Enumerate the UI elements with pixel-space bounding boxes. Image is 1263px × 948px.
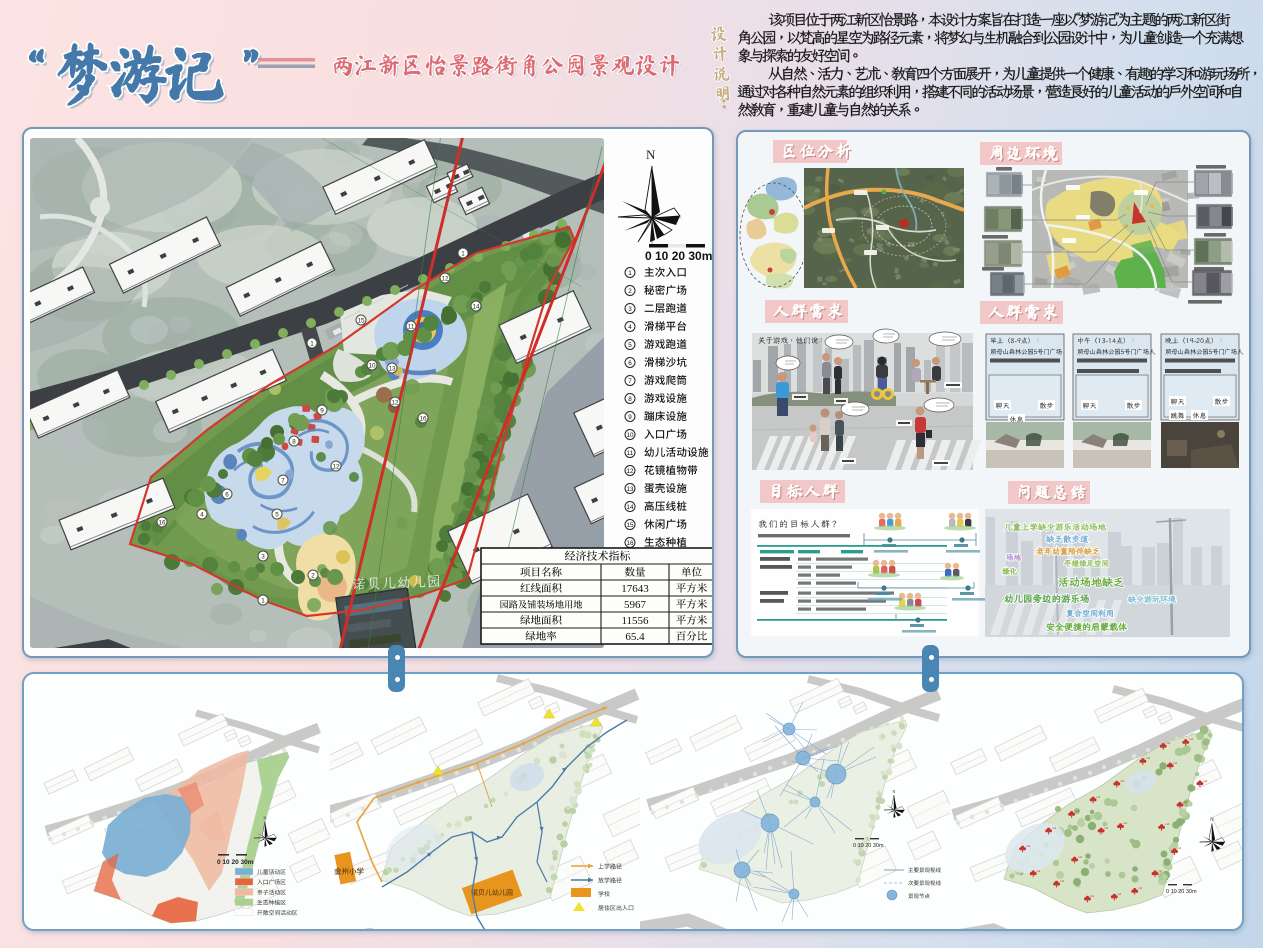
svg-text:12: 12 [441,275,449,282]
svg-text:12: 12 [626,468,634,475]
svg-text:5967: 5967 [624,599,647,611]
svg-text:12: 12 [391,399,399,406]
svg-text:m2: m2 [1026,844,1030,848]
svg-text:65.4: 65.4 [625,631,645,643]
svg-text:m2: m2 [1075,809,1079,813]
svg-text:9: 9 [628,414,632,421]
svg-text:m2: m2 [1117,892,1121,896]
svg-text:17643: 17643 [621,583,649,595]
svg-text:m2: m2 [1138,886,1142,890]
svg-text:m2: m2 [1052,826,1056,830]
svg-text:8: 8 [292,438,296,445]
svg-text:m2: m2 [1183,800,1187,804]
svg-text:1: 1 [461,250,465,257]
svg-text:15: 15 [626,522,634,529]
svg-text:m2: m2 [1104,826,1108,830]
svg-text:5: 5 [628,342,632,349]
svg-text:3: 3 [628,306,632,313]
svg-text:m2: m2 [1166,741,1170,745]
svg-text:m2: m2 [1158,869,1162,873]
svg-text:5: 5 [275,511,279,518]
svg-text:0 10 20 30m: 0 10 20 30m [1166,889,1197,895]
svg-text:15: 15 [357,317,365,324]
svg-text:m2: m2 [1123,821,1127,825]
svg-text:16: 16 [626,540,634,547]
svg-text:1: 1 [261,597,265,604]
svg-text:7: 7 [281,477,285,484]
svg-text:2: 2 [311,572,315,579]
svg-text:13: 13 [626,486,634,493]
svg-text:m2: m2 [1146,756,1150,760]
svg-text:m2: m2 [1120,779,1124,783]
svg-text:4: 4 [628,324,632,331]
svg-text:13: 13 [388,365,396,372]
svg-text:m2: m2 [1060,879,1064,883]
svg-text:1: 1 [628,270,632,277]
svg-text:N: N [1210,818,1214,823]
svg-text:N: N [646,147,656,162]
svg-text:7: 7 [628,378,632,385]
svg-text:16: 16 [158,519,166,526]
svg-text:11: 11 [408,323,415,330]
svg-text:m2: m2 [1036,869,1040,873]
svg-text:2: 2 [628,288,632,295]
svg-text:4: 4 [200,511,204,518]
svg-text:11556: 11556 [621,615,649,627]
svg-text:0 10 20 30m: 0 10 20 30m [217,859,254,866]
svg-text:9: 9 [320,407,324,414]
svg-text:m2: m2 [1203,779,1207,783]
svg-text:10: 10 [368,362,376,369]
svg-text:6: 6 [628,360,632,367]
svg-text:14: 14 [626,504,634,511]
svg-text:1: 1 [310,340,314,347]
svg-text:0 10 20 30m: 0 10 20 30m [645,249,712,263]
svg-text:m2: m2 [1177,846,1181,850]
svg-text:m2: m2 [1078,855,1082,859]
svg-text:14: 14 [472,303,480,310]
svg-text:m2: m2 [1173,761,1177,765]
svg-text:16: 16 [419,415,427,422]
svg-text:12: 12 [332,463,340,470]
svg-text:3: 3 [261,553,265,560]
svg-text:8: 8 [628,396,632,403]
svg-text:0 10 20 30m: 0 10 20 30m [853,843,884,849]
svg-text:6: 6 [225,491,229,498]
svg-text:m2: m2 [1165,822,1169,826]
svg-text:10: 10 [626,432,634,439]
svg-text:m2: m2 [1189,737,1193,741]
svg-text:N: N [893,789,896,794]
svg-text:11: 11 [627,450,634,457]
svg-text:m2: m2 [1090,894,1094,898]
svg-text:m2: m2 [1096,795,1100,799]
